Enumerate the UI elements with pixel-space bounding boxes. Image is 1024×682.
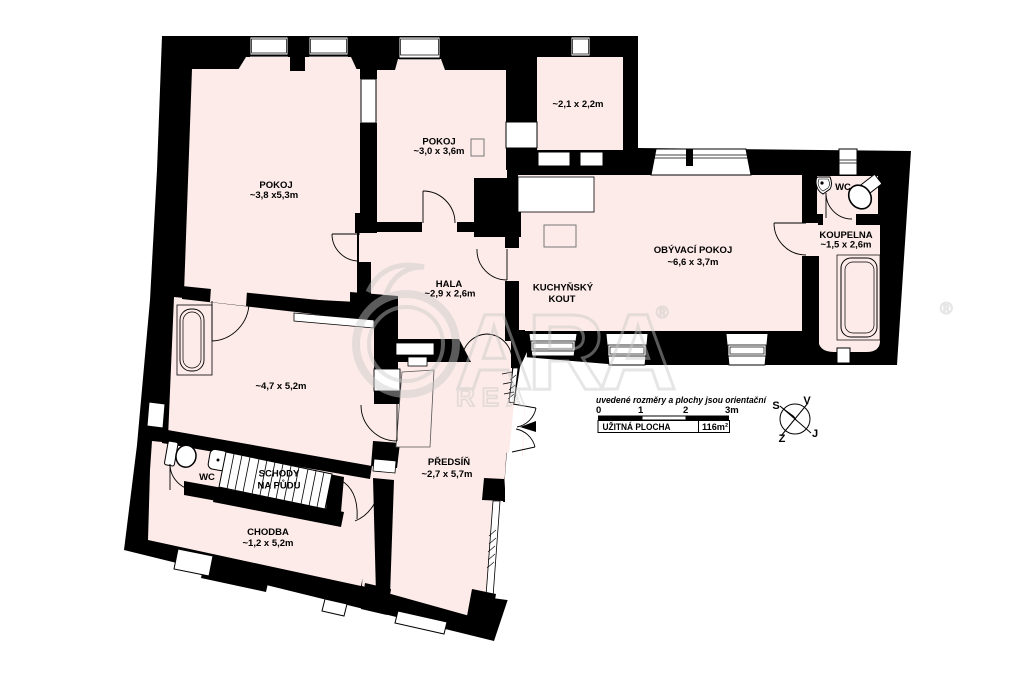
svg-text:V: V [803, 395, 811, 407]
svg-text:~1,2 x 5,2m: ~1,2 x 5,2m [243, 538, 294, 549]
svg-text:~1,5 x 2,6m: ~1,5 x 2,6m [821, 240, 872, 251]
svg-text:®: ® [656, 303, 669, 322]
svg-text:116m²: 116m² [702, 422, 728, 433]
svg-text:®: ® [940, 299, 953, 318]
svg-text:~6,6 x 3,7m: ~6,6 x 3,7m [668, 257, 719, 268]
svg-text:PŘEDSÍŇ: PŘEDSÍŇ [428, 456, 470, 468]
svg-text:SCHODY: SCHODY [259, 469, 300, 480]
svg-text:UŽITNÁ PLOCHA: UŽITNÁ PLOCHA [603, 421, 671, 433]
svg-text:WC: WC [199, 472, 215, 483]
svg-text:OBÝVACÍ POKOJ: OBÝVACÍ POKOJ [654, 244, 732, 256]
svg-text:~3,8 x5,3m: ~3,8 x5,3m [250, 190, 298, 201]
svg-text:CHODBA: CHODBA [247, 527, 289, 538]
svg-text:~2,1 x 2,2m: ~2,1 x 2,2m [553, 99, 604, 110]
svg-text:~4,7 x 5,2m: ~4,7 x 5,2m [256, 381, 307, 392]
svg-text:2: 2 [683, 405, 688, 416]
svg-text:REA: REA [456, 382, 532, 412]
svg-text:Z: Z [779, 433, 786, 445]
svg-text:3m: 3m [725, 405, 739, 416]
svg-text:~2,7 x 5,7m: ~2,7 x 5,7m [422, 469, 473, 480]
svg-text:WC: WC [835, 182, 851, 193]
svg-text:NA PŮDU: NA PŮDU [258, 480, 301, 492]
svg-text:J: J [812, 428, 818, 440]
svg-text:S: S [772, 400, 779, 412]
svg-text:~3,0 x 3,6m: ~3,0 x 3,6m [414, 146, 465, 157]
